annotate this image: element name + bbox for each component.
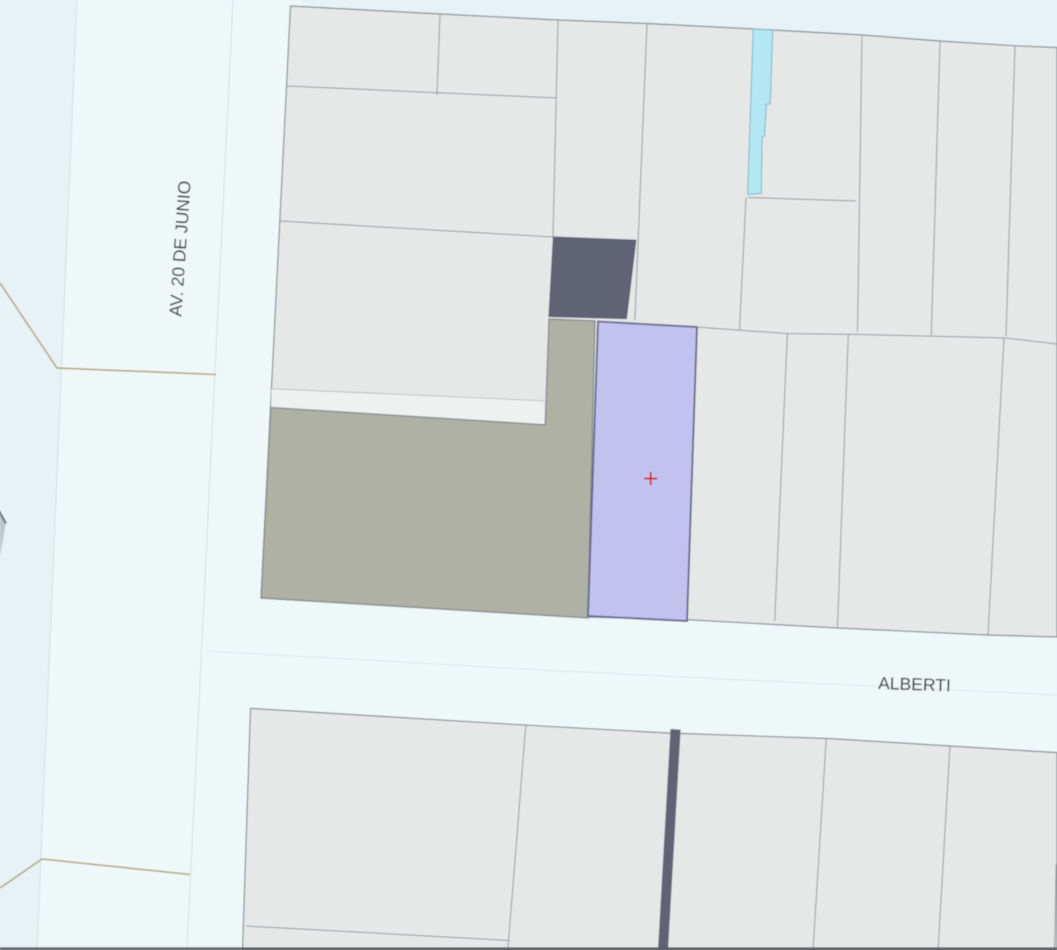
- svg-text:ALBERTI: ALBERTI: [878, 673, 951, 696]
